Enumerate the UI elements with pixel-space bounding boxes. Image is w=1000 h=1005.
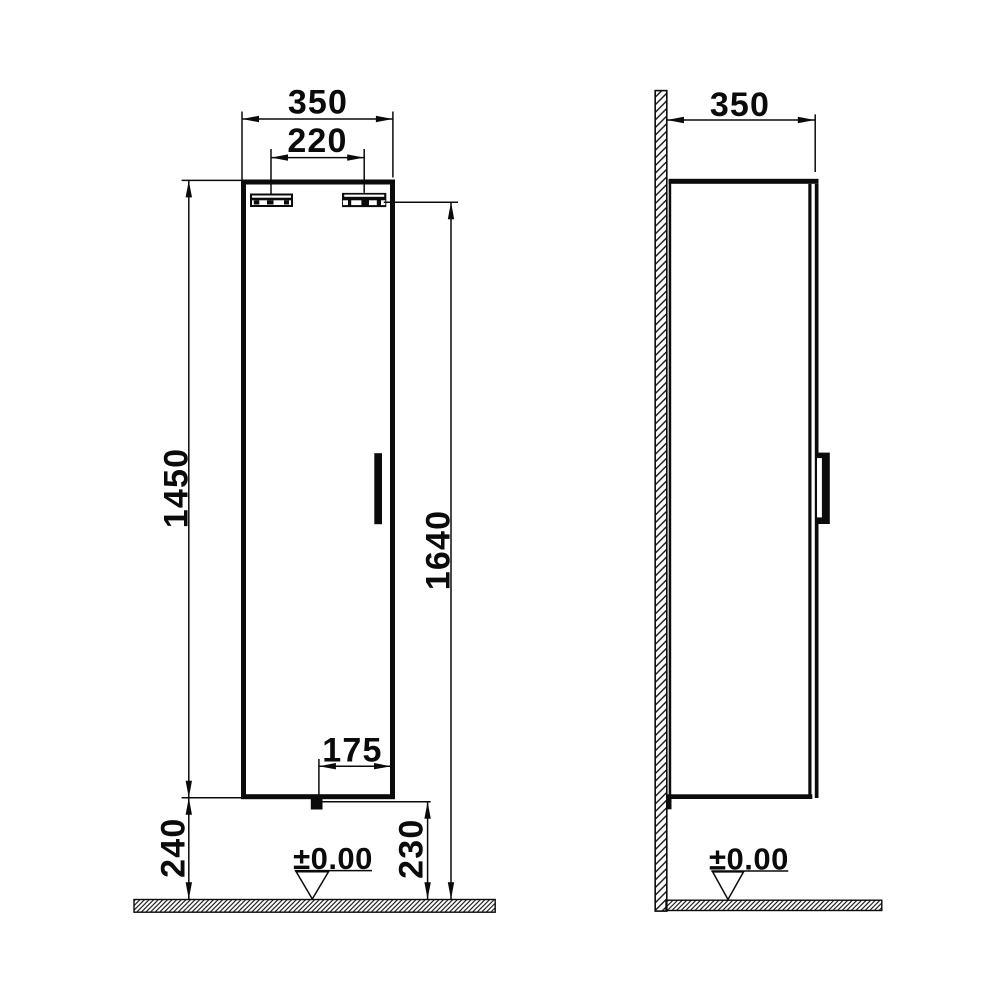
svg-text:230: 230 bbox=[393, 819, 431, 879]
svg-text:175: 175 bbox=[322, 732, 382, 770]
svg-text:240: 240 bbox=[155, 818, 193, 878]
svg-text:1640: 1640 bbox=[420, 510, 458, 590]
svg-text:220: 220 bbox=[287, 122, 347, 160]
svg-text:1450: 1450 bbox=[158, 448, 196, 528]
svg-text:350: 350 bbox=[710, 86, 770, 124]
svg-text:350: 350 bbox=[288, 84, 348, 122]
